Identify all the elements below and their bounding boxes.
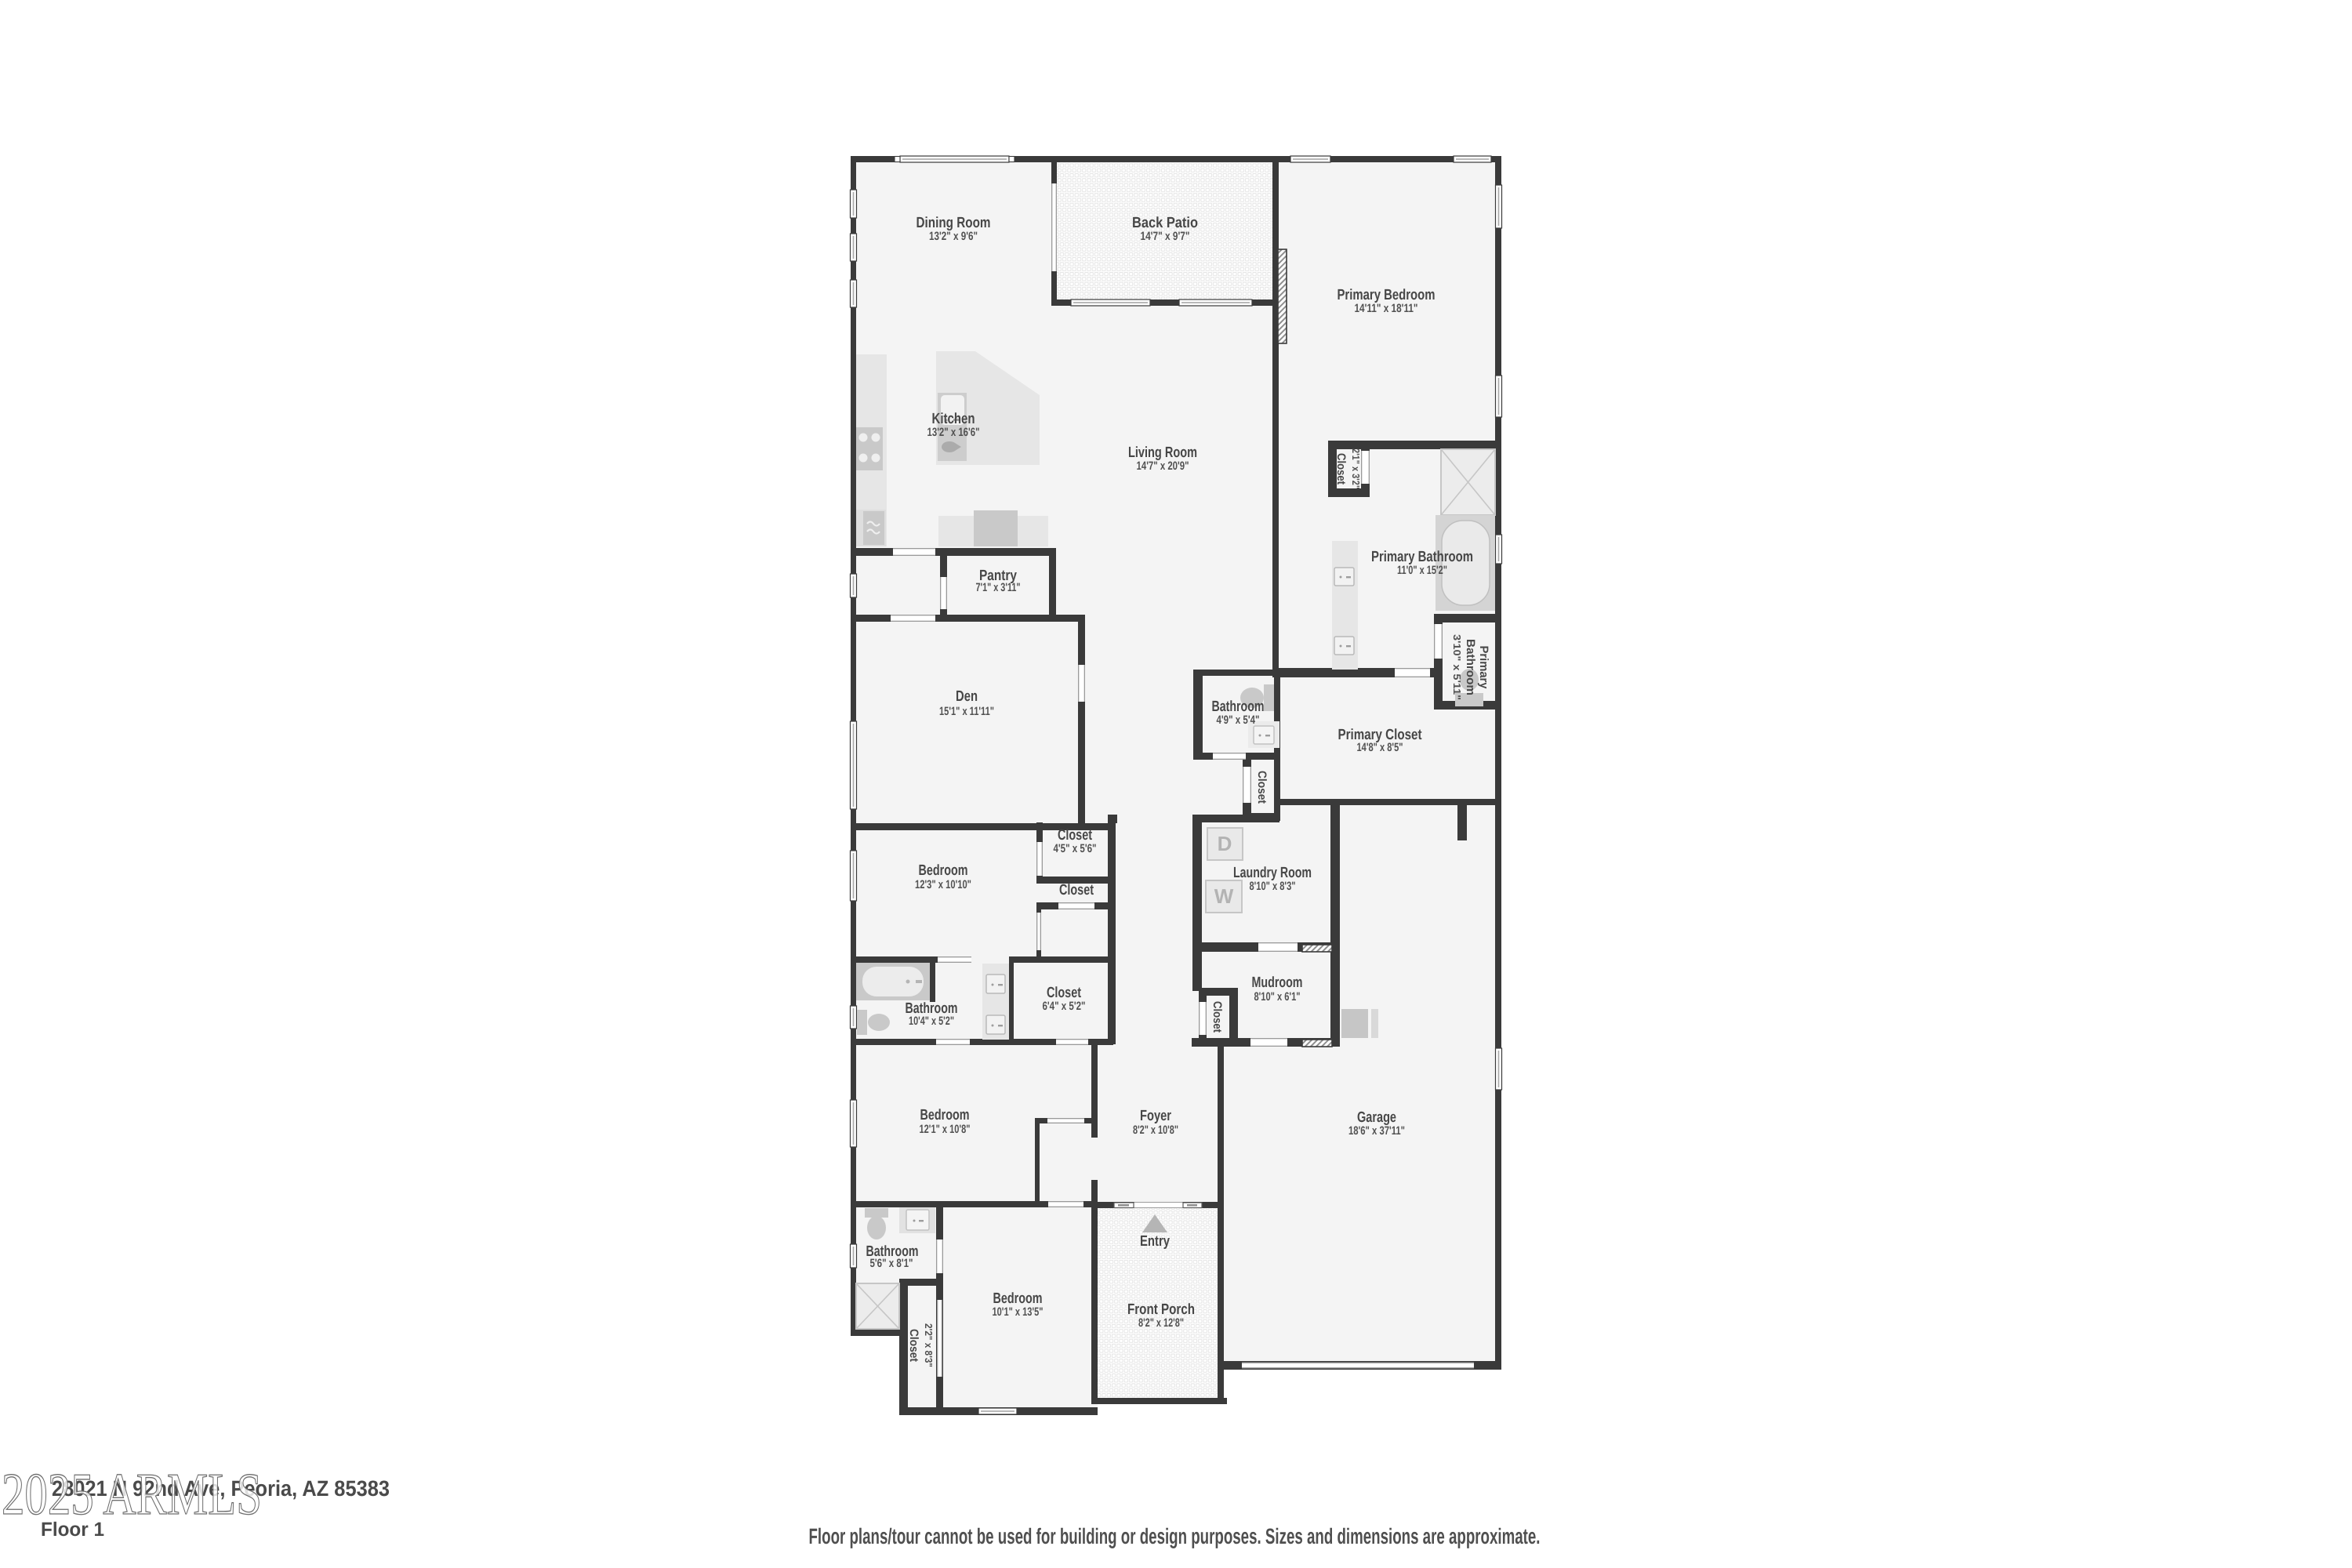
svg-text:W: W [1214,884,1234,908]
svg-text:Bathroom: Bathroom [1464,639,1477,695]
svg-text:3'10" x 5'11": 3'10" x 5'11" [1451,634,1463,700]
svg-text:13'2" x 9'6": 13'2" x 9'6" [929,230,978,243]
svg-text:15'1" x 11'11": 15'1" x 11'11" [939,705,994,718]
svg-text:Mudroom: Mudroom [1252,975,1303,991]
svg-text:Closet: Closet [1210,1001,1224,1033]
svg-text:5'6" x 8'1": 5'6" x 8'1" [870,1257,913,1270]
svg-text:Bedroom: Bedroom [919,862,968,879]
svg-text:Front Porch: Front Porch [1127,1301,1195,1318]
svg-text:6'4" x 5'2": 6'4" x 5'2" [1043,1000,1086,1013]
svg-text:11'0" x 15'2": 11'0" x 15'2" [1397,564,1447,577]
svg-text:D: D [1218,832,1232,855]
svg-text:Bedroom: Bedroom [993,1290,1043,1307]
svg-text:18'6" x 37'11": 18'6" x 37'11" [1348,1124,1405,1138]
svg-text:8'10" x 6'1": 8'10" x 6'1" [1254,990,1301,1004]
svg-text:Closet: Closet [1047,985,1082,1001]
svg-text:Kitchen: Kitchen [932,411,975,427]
svg-text:4'9" x 5'4": 4'9" x 5'4" [1217,713,1260,727]
svg-text:Primary Bedroom: Primary Bedroom [1338,287,1436,303]
svg-text:Primary: Primary [1477,646,1490,690]
svg-text:Den: Den [956,688,978,705]
svg-text:10'4" x 5'2": 10'4" x 5'2" [909,1014,954,1028]
svg-text:Back Patio: Back Patio [1132,215,1198,231]
svg-text:14'8" x 8'5": 14'8" x 8'5" [1357,741,1403,754]
svg-text:Dining Room: Dining Room [916,215,991,231]
svg-text:8'10" x 8'3": 8'10" x 8'3" [1250,880,1296,893]
svg-text:Closet: Closet [1058,827,1093,844]
svg-text:12'3" x 10'10": 12'3" x 10'10" [915,878,971,891]
svg-text:7'1" x 3'11": 7'1" x 3'11" [976,581,1021,594]
svg-text:Floor 1: Floor 1 [41,1519,104,1541]
svg-text:Closet: Closet [1334,453,1348,485]
svg-text:Living Room: Living Room [1128,445,1197,461]
svg-text:12'1" x 10'8": 12'1" x 10'8" [920,1123,971,1136]
svg-text:Laundry Room: Laundry Room [1233,865,1312,881]
svg-text:14'7" x 20'9": 14'7" x 20'9" [1137,459,1189,473]
svg-text:Primary Bathroom: Primary Bathroom [1371,549,1473,565]
svg-text:Entry: Entry [1140,1233,1170,1250]
svg-text:2'1" x 3'2": 2'1" x 3'2" [1350,448,1362,489]
svg-text:4'5" x 5'6": 4'5" x 5'6" [1054,842,1097,855]
svg-text:Bathroom: Bathroom [1212,699,1265,715]
svg-text:Foyer: Foyer [1140,1108,1171,1124]
svg-text:8'2" x 12'8": 8'2" x 12'8" [1138,1316,1184,1330]
svg-text:Floor plans/tour cannot be use: Floor plans/tour cannot be used for buil… [809,1524,1541,1548]
svg-text:13'2" x 16'6": 13'2" x 16'6" [927,426,980,439]
svg-text:Closet: Closet [1059,882,1094,898]
svg-text:Closet: Closet [1255,771,1269,804]
svg-text:14'11" x 18'11": 14'11" x 18'11" [1355,302,1418,315]
svg-text:14'7" x 9'7": 14'7" x 9'7" [1141,230,1190,243]
svg-text:10'1" x 13'5": 10'1" x 13'5" [993,1305,1044,1319]
svg-text:Bedroom: Bedroom [920,1107,970,1123]
svg-text:2'2" x 8'3": 2'2" x 8'3" [923,1323,935,1367]
svg-text:Closet: Closet [907,1329,920,1362]
svg-text:8'2" x 10'8": 8'2" x 10'8" [1133,1123,1178,1137]
svg-text:Garage: Garage [1357,1109,1396,1126]
svg-text:2025 ARMLS: 2025 ARMLS [2,1461,262,1527]
